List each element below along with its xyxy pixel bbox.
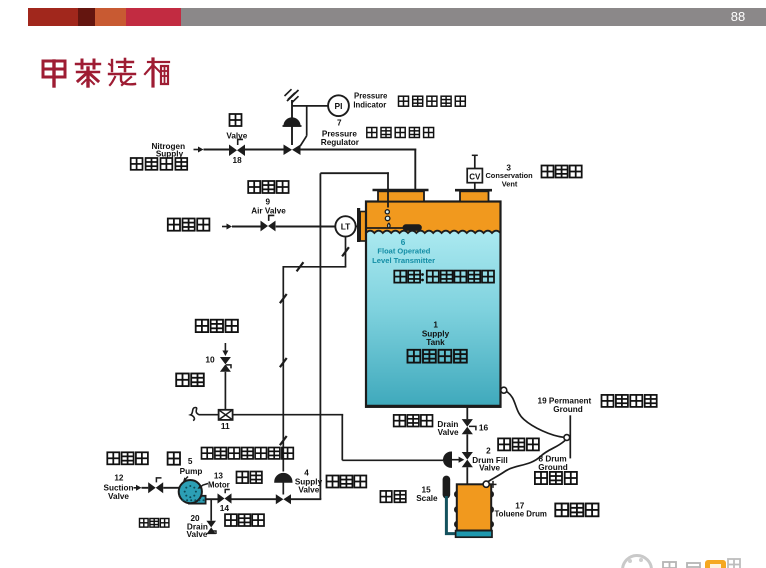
svg-text:Indicator: Indicator bbox=[353, 100, 386, 109]
svg-text:Supply: Supply bbox=[156, 149, 184, 158]
svg-text:9: 9 bbox=[266, 197, 271, 206]
svg-text:Level Transmitter: Level Transmitter bbox=[372, 256, 435, 265]
svg-text:5: 5 bbox=[188, 457, 193, 466]
svg-text:Air Valve: Air Valve bbox=[251, 207, 286, 216]
svg-text:Ground: Ground bbox=[553, 405, 583, 414]
svg-text:7: 7 bbox=[337, 119, 342, 128]
svg-text:Regulator: Regulator bbox=[321, 138, 360, 147]
svg-text:Valve: Valve bbox=[479, 464, 500, 473]
svg-text:LT: LT bbox=[341, 222, 351, 232]
svg-text:11: 11 bbox=[221, 421, 230, 431]
svg-text:Pressure: Pressure bbox=[354, 92, 388, 101]
svg-text:18: 18 bbox=[233, 156, 243, 165]
svg-text:14: 14 bbox=[220, 503, 230, 513]
svg-text:Float Operated: Float Operated bbox=[377, 246, 430, 255]
svg-text:Tank: Tank bbox=[426, 338, 445, 347]
svg-text:10: 10 bbox=[205, 355, 215, 365]
svg-text:19 Permanent: 19 Permanent bbox=[538, 396, 592, 405]
svg-text:Vent: Vent bbox=[502, 180, 518, 189]
svg-text:Valve: Valve bbox=[108, 492, 129, 501]
svg-text:4: 4 bbox=[304, 468, 309, 477]
svg-text:Scale: Scale bbox=[416, 494, 438, 503]
svg-text:Toluene Drum: Toluene Drum bbox=[494, 509, 546, 518]
svg-text:Valve: Valve bbox=[187, 530, 208, 539]
svg-text:12: 12 bbox=[114, 474, 124, 483]
svg-text:Ground: Ground bbox=[538, 463, 568, 472]
svg-text:Motor: Motor bbox=[208, 481, 230, 490]
svg-text:Valve: Valve bbox=[298, 485, 319, 494]
svg-text:13: 13 bbox=[214, 471, 224, 480]
svg-text:Conservation: Conservation bbox=[485, 171, 533, 180]
svg-text:Suction: Suction bbox=[103, 483, 133, 492]
svg-text:2: 2 bbox=[486, 447, 491, 456]
svg-text:Pump: Pump bbox=[180, 467, 203, 476]
svg-text:16: 16 bbox=[479, 423, 489, 433]
svg-text:Valve: Valve bbox=[226, 132, 247, 141]
svg-text:Valve: Valve bbox=[438, 428, 459, 437]
svg-text:1: 1 bbox=[433, 321, 438, 330]
svg-text:PI: PI bbox=[335, 101, 343, 111]
svg-text:CV: CV bbox=[469, 172, 481, 181]
